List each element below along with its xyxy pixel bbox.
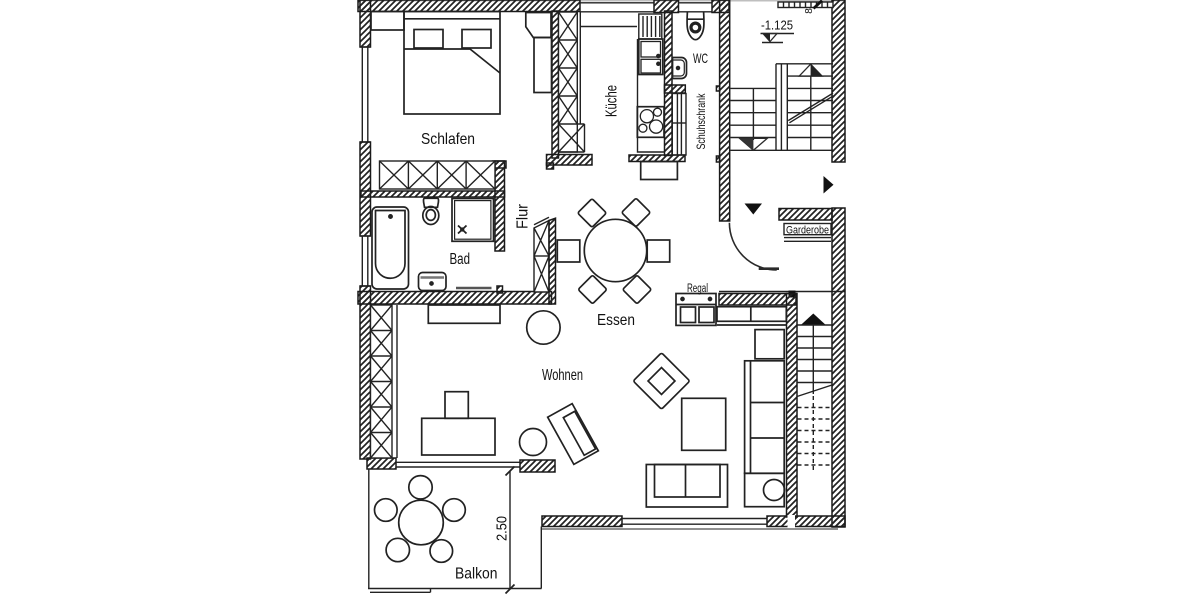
svg-text:Garderobe: Garderobe xyxy=(786,225,829,237)
svg-text:-1.125: -1.125 xyxy=(761,19,793,33)
svg-text:Schlafen: Schlafen xyxy=(421,131,475,148)
svg-text:Regal: Regal xyxy=(687,283,708,295)
svg-text:Bad: Bad xyxy=(450,251,471,268)
svg-text:8: 8 xyxy=(804,8,815,14)
svg-text:Balkon: Balkon xyxy=(455,565,498,582)
svg-text:Wohnen: Wohnen xyxy=(542,367,583,384)
svg-text:2.50: 2.50 xyxy=(494,516,511,541)
svg-text:Schuhschrank: Schuhschrank xyxy=(694,93,708,150)
svg-text:WC: WC xyxy=(693,50,708,66)
svg-text:Küche: Küche xyxy=(604,85,621,117)
svg-text:Flur: Flur xyxy=(515,203,532,229)
svg-text:Essen: Essen xyxy=(597,312,635,329)
